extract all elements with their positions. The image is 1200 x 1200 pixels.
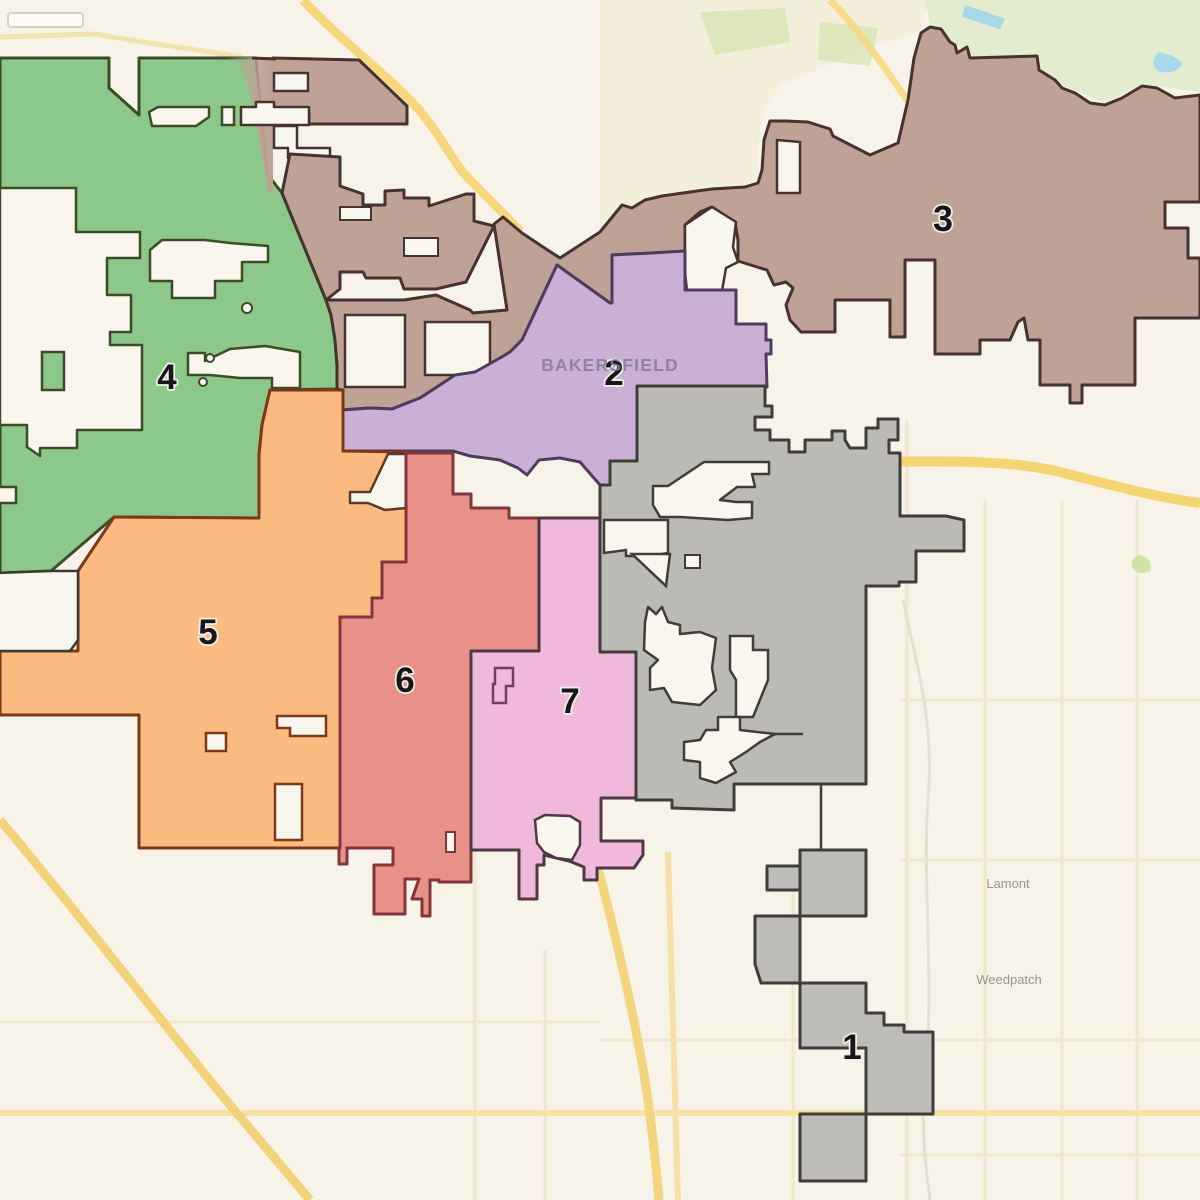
svg-text:3: 3 <box>933 198 953 239</box>
svg-text:7: 7 <box>560 682 579 721</box>
svg-text:5: 5 <box>198 613 217 652</box>
svg-text:4: 4 <box>157 358 177 397</box>
svg-text:BAKERSFIELD: BAKERSFIELD <box>541 355 679 375</box>
svg-text:6: 6 <box>395 661 414 700</box>
svg-text:Weedpatch: Weedpatch <box>976 972 1042 987</box>
svg-text:Lamont: Lamont <box>986 876 1030 891</box>
svg-text:1: 1 <box>842 1028 861 1067</box>
